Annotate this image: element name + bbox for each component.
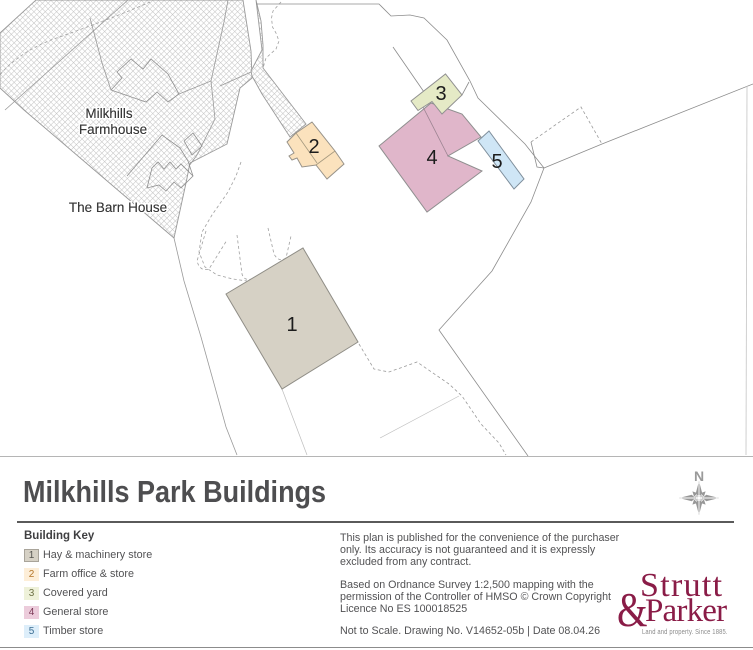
svg-text:4: 4	[426, 147, 437, 169]
svg-text:Farmhouse: Farmhouse	[79, 122, 147, 137]
svg-text:5: 5	[491, 151, 502, 173]
svg-text:Milkhills: Milkhills	[85, 106, 133, 121]
svg-text:The Barn House: The Barn House	[69, 200, 167, 215]
svg-text:2: 2	[308, 136, 319, 158]
svg-text:1: 1	[286, 314, 297, 336]
svg-text:3: 3	[435, 83, 446, 105]
